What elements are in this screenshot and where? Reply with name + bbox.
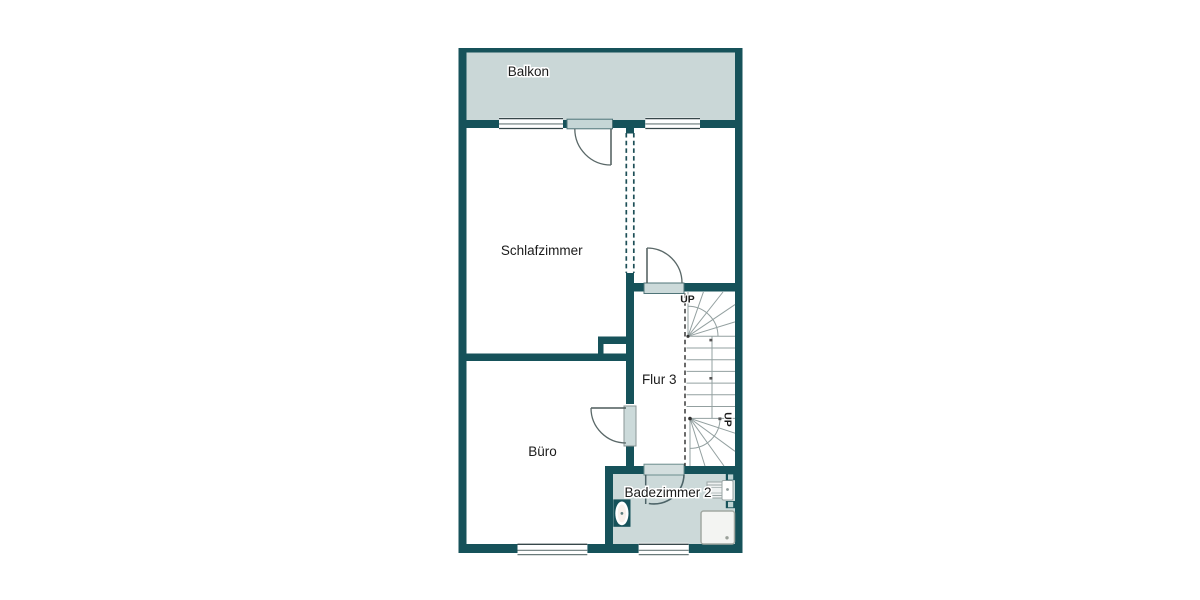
svg-text:Schlafzimmer: Schlafzimmer <box>501 243 583 258</box>
svg-text:UP: UP <box>680 295 695 306</box>
svg-text:Balkon: Balkon <box>508 64 549 79</box>
svg-text:UP: UP <box>722 412 733 427</box>
svg-text:Flur 3: Flur 3 <box>642 372 677 387</box>
svg-text:Badezimmer 2: Badezimmer 2 <box>624 485 711 500</box>
svg-text:Büro: Büro <box>528 444 557 459</box>
